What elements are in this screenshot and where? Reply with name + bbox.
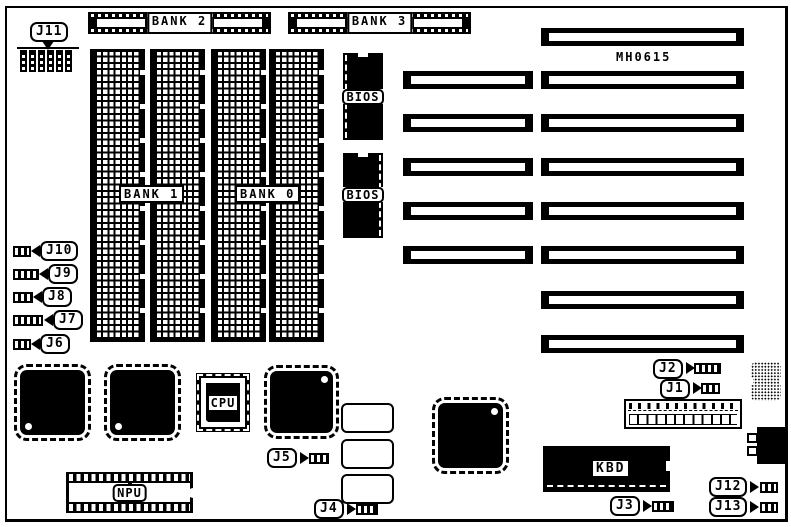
pin1-dot [115, 423, 122, 430]
divider [628, 410, 738, 411]
callout-pointer [33, 291, 42, 303]
chip-pin-dashes [547, 485, 666, 487]
jumper-pin [56, 50, 63, 72]
jumper-pin [38, 50, 45, 72]
isa-slot-short [403, 158, 533, 176]
kbd-chip: KBD [543, 446, 670, 492]
qfp-chip [110, 370, 175, 435]
bios-chip-top: BIOS [343, 53, 383, 140]
npu-label: NPU [112, 484, 147, 502]
connector-tab [747, 433, 758, 443]
isa-slot-long [541, 291, 744, 309]
cpu-die: CPU [206, 383, 240, 422]
socket-notch [188, 488, 198, 498]
chip-notch [358, 53, 368, 57]
callout-pointer [44, 314, 53, 326]
jumper-j12-label: J12 [709, 477, 747, 497]
socket-slot [297, 19, 345, 27]
callout-pointer [300, 452, 309, 464]
callout-pointer [31, 245, 40, 257]
pin1-dot [25, 423, 32, 430]
bank2-label: BANK 2 [147, 12, 212, 34]
dip-switch-block [624, 399, 742, 429]
jumper-j1-connector [701, 383, 720, 394]
jumper-j9-connector [13, 269, 39, 280]
jumper-j10-connector [13, 246, 31, 257]
jumper-pin [47, 50, 54, 72]
jumper-j4-connector [356, 504, 378, 515]
cpu-label: CPU [207, 394, 240, 412]
bios-label: BIOS [342, 89, 385, 105]
callout-bracket [17, 47, 79, 49]
qfp-chip [270, 371, 333, 433]
jumper-j4-label: J4 [314, 499, 344, 519]
jumper-j3-label: J3 [610, 496, 640, 516]
connector-tab [747, 446, 758, 456]
jumper-j2-connector [694, 363, 721, 374]
bank2-socket-row: BANK 2 [88, 12, 271, 34]
pin-row [69, 474, 190, 481]
callout-pointer [31, 338, 40, 350]
empty-socket [341, 474, 394, 504]
jumper-j5-label: J5 [267, 448, 297, 468]
bios-chip-bottom: BIOS [343, 153, 383, 238]
dotted-pad-block [751, 362, 781, 401]
jumper-j6-connector [13, 339, 31, 350]
isa-slot-short [403, 202, 533, 220]
isa-slot-short [403, 71, 533, 89]
chip-notch [358, 153, 368, 157]
chip-notch [666, 461, 670, 471]
isa-slot-long [541, 246, 744, 264]
callout-pointer [750, 481, 759, 493]
jumper-j13-label: J13 [709, 497, 747, 517]
pin-row [69, 504, 190, 511]
jumper-j13-connector [760, 502, 778, 513]
switch-pins [629, 403, 738, 409]
bios-label-band: BIOS [340, 89, 386, 104]
jumper-pin [29, 50, 36, 72]
isa-slot-short [403, 114, 533, 132]
bank1-label: BANK 1 [119, 185, 184, 203]
callout-pointer [347, 503, 356, 515]
jumper-j12-connector [760, 482, 778, 493]
callout-pointer [643, 500, 652, 512]
qfp-chip [438, 403, 503, 468]
empty-socket [341, 403, 394, 433]
bank0-label: BANK 0 [235, 185, 300, 203]
kbd-label: KBD [592, 460, 629, 477]
isa-slot-long [541, 114, 744, 132]
bank3-label: BANK 3 [347, 12, 412, 34]
jumper-j7-connector [13, 315, 43, 326]
empty-socket [341, 439, 394, 469]
isa-slot-long [541, 28, 744, 46]
isa-slot-long [541, 335, 744, 353]
isa-slot-long [541, 202, 744, 220]
jumper-pin [20, 50, 27, 72]
jumper-j9-label: J9 [48, 264, 78, 284]
jumper-j6-label: J6 [40, 334, 70, 354]
callout-pointer [39, 268, 48, 280]
isa-slot-long [541, 71, 744, 89]
jumper-pin [65, 50, 72, 72]
qfp-chip [20, 370, 85, 435]
keyboard-din-connector [757, 427, 785, 464]
cpu-socket: CPU [196, 373, 250, 432]
npu-socket: NPU [66, 472, 193, 513]
jumper-j8-label: J8 [42, 287, 72, 307]
switch-positions [629, 414, 737, 425]
jumper-j10-label: J10 [40, 241, 78, 261]
jumper-j2-label: J2 [653, 359, 683, 379]
board-model-label: MH0615 [616, 50, 671, 64]
callout-pointer [750, 501, 759, 513]
jumper-j11-connector [20, 50, 78, 72]
socket-slot [97, 19, 145, 27]
pin1-dot [321, 376, 328, 383]
jumper-j11-label: J11 [30, 22, 68, 42]
bios-label-band: BIOS [340, 187, 386, 202]
jumper-j7-label: J7 [53, 310, 83, 330]
motherboard-diagram: BANK 2 BANK 3 BANK 1 BANK 0 BIOS BIOS [0, 0, 791, 527]
bios-label: BIOS [342, 187, 385, 203]
isa-slot-long [541, 158, 744, 176]
socket-slot [414, 19, 462, 27]
jumper-j1-label: J1 [660, 379, 690, 399]
jumper-j5-connector [309, 453, 329, 464]
socket-slot [214, 19, 262, 27]
pin1-dot [202, 420, 208, 426]
jumper-j3-connector [652, 501, 674, 512]
jumper-j8-connector [13, 292, 33, 303]
isa-slot-short [403, 246, 533, 264]
pin1-dot [491, 408, 498, 415]
bank3-socket-row: BANK 3 [288, 12, 471, 34]
